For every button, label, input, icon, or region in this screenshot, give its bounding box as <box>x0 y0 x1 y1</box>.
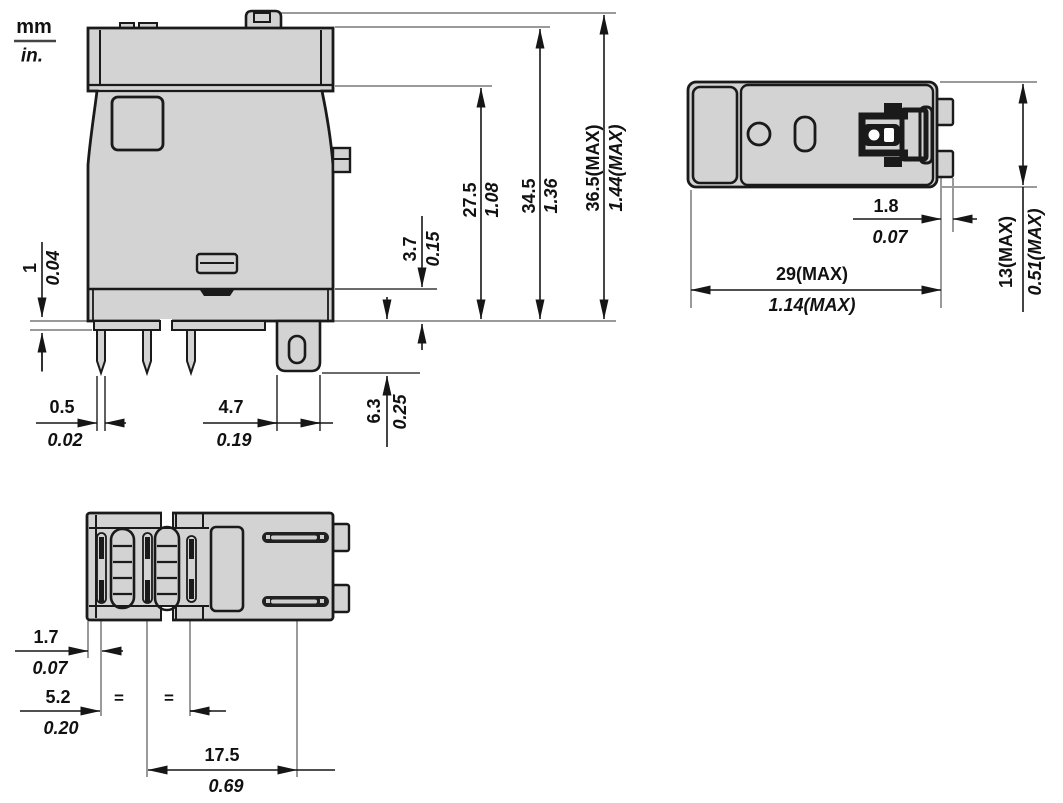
pin-3 <box>187 330 195 373</box>
clip-nub-top <box>884 103 902 113</box>
dim-5-2-mm: 5.2 <box>45 687 70 707</box>
blade-slot-upper <box>262 532 329 543</box>
top-view: 1.8 0.07 29(MAX) 1.14(MAX) 13(MAX) 0.51(… <box>688 82 1045 315</box>
dim-1-7-mm: 1.7 <box>33 627 58 647</box>
dim-36-5-in: 1.44(MAX) <box>606 124 626 211</box>
dim-34-5-mm: 34.5 <box>519 178 539 213</box>
units-inch-label: in. <box>21 46 43 67</box>
relay-bottom-body <box>87 511 349 622</box>
dim-1-in: 0.04 <box>43 250 63 285</box>
equal-mark-2: = <box>164 689 174 708</box>
dim-5-2-in: 0.20 <box>43 718 78 738</box>
equal-mark-1: = <box>114 689 124 708</box>
clip-inner-dot <box>869 130 880 141</box>
dim-27-5-mm: 27.5 <box>460 182 480 217</box>
base-lip-notch <box>160 319 172 332</box>
relay-dimension-drawing: mm in. <box>0 0 1063 803</box>
dim-13-in: 0.51(MAX) <box>1025 208 1045 295</box>
front-silhouette <box>88 28 333 321</box>
units-mm-label: mm <box>16 16 52 38</box>
dim-1-8-in: 0.07 <box>872 227 908 247</box>
dim-29-in: 1.14(MAX) <box>768 295 855 315</box>
dim-4-7-mm: 4.7 <box>218 397 243 417</box>
dim-3-7-mm: 3.7 <box>400 236 420 261</box>
pin-1 <box>97 330 105 373</box>
dim-0-5-mm: 0.5 <box>49 397 74 417</box>
dim-27-5-in: 1.08 <box>482 182 502 217</box>
dim-29-mm: 29(MAX) <box>776 264 848 284</box>
dim-4-7-in: 0.19 <box>216 430 251 450</box>
bottom-right-tab-lower <box>333 585 349 612</box>
blade-slot-lower <box>262 596 329 607</box>
bottom-view: 1.7 0.07 = = 5.2 0.20 17.5 0.69 <box>15 511 349 796</box>
bottom-dimensions: 1.7 0.07 = = 5.2 0.20 17.5 0.69 <box>15 627 335 796</box>
dim-6-3-mm: 6.3 <box>364 398 384 423</box>
dim-1-7-in: 0.07 <box>32 658 68 678</box>
base-lip <box>94 321 265 330</box>
dim-13-mm: 13(MAX) <box>996 216 1016 288</box>
bottom-top-notch <box>162 511 172 527</box>
base-latch-tab <box>200 290 234 296</box>
bottom-right-tab-upper <box>333 524 349 551</box>
dim-17-5-in: 0.69 <box>208 776 243 796</box>
clip-nub-bottom <box>884 157 902 167</box>
dim-1-8-mm: 1.8 <box>873 196 898 216</box>
dim-6-3-in: 0.25 <box>390 394 410 430</box>
dim-3-7-in: 0.15 <box>423 231 443 267</box>
relay-front-body <box>88 11 350 373</box>
dim-0-5-in: 0.02 <box>47 430 82 450</box>
dim-36-5-mm: 36.5(MAX) <box>583 124 603 211</box>
front-view: 27.5 1.08 34.5 1.36 36.5(MAX) 1.44(MAX) … <box>20 11 626 450</box>
relay-dimension-drawing-page: mm in. <box>0 0 1063 803</box>
units-legend: mm in. <box>14 16 56 67</box>
dim-1-mm: 1 <box>20 263 40 273</box>
relay-top-body <box>688 82 953 187</box>
pin-2 <box>143 330 151 373</box>
dim-34-5-in: 1.36 <box>541 178 561 214</box>
dim-17-5-mm: 17.5 <box>204 745 239 765</box>
clip-inner-slot <box>884 128 894 142</box>
